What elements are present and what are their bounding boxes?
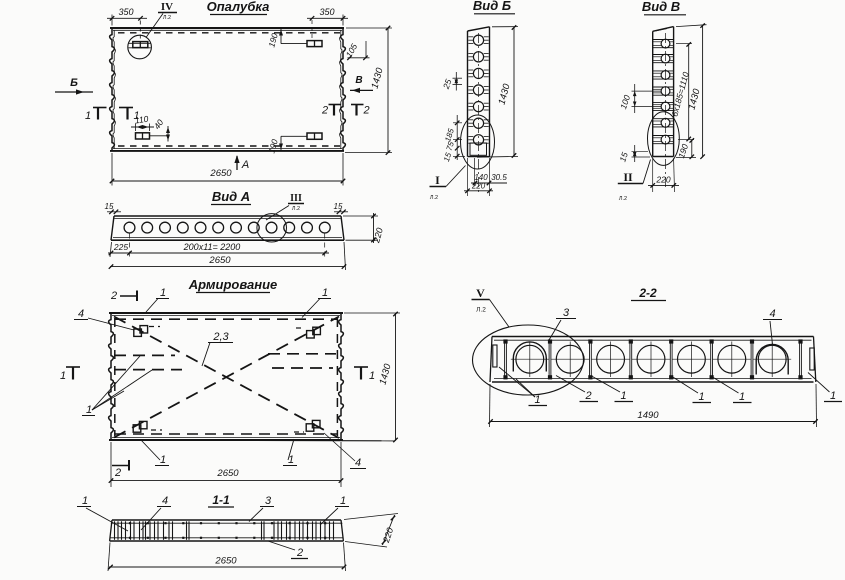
svg-text:1: 1	[534, 394, 540, 406]
svg-text:II: II	[623, 170, 633, 184]
svg-text:225: 225	[113, 242, 128, 252]
svg-text:2650: 2650	[209, 168, 232, 179]
svg-text:1: 1	[82, 495, 88, 507]
svg-text:V: V	[476, 286, 485, 300]
svg-text:2-2: 2-2	[638, 286, 657, 300]
svg-text:2650: 2650	[208, 255, 231, 266]
svg-text:220: 220	[471, 182, 486, 191]
svg-text:1-1: 1-1	[212, 493, 230, 507]
svg-text:В: В	[355, 75, 362, 86]
svg-text:2650: 2650	[214, 556, 237, 567]
svg-text:IV: IV	[161, 1, 173, 13]
svg-text:Л.2: Л.2	[476, 307, 486, 314]
svg-text:1: 1	[322, 287, 328, 299]
svg-text:4: 4	[769, 308, 775, 320]
svg-text:1: 1	[340, 495, 346, 507]
svg-text:1: 1	[369, 370, 375, 382]
svg-text:1: 1	[830, 390, 836, 402]
svg-text:1: 1	[739, 391, 745, 403]
svg-text:Б: Б	[70, 77, 78, 89]
svg-text:4: 4	[78, 308, 84, 320]
svg-text:Л.2: Л.2	[292, 206, 300, 212]
svg-text:30.5: 30.5	[491, 173, 507, 182]
svg-text:1: 1	[86, 404, 92, 416]
svg-text:1: 1	[133, 110, 139, 122]
svg-text:2: 2	[110, 290, 117, 302]
svg-text:1: 1	[160, 454, 166, 466]
svg-text:2: 2	[362, 105, 369, 117]
svg-text:1: 1	[60, 370, 66, 382]
svg-text:1: 1	[160, 287, 166, 299]
svg-text:220: 220	[655, 175, 670, 185]
svg-text:1: 1	[698, 391, 704, 403]
svg-text:4: 4	[355, 457, 361, 469]
svg-text:2,3: 2,3	[212, 331, 229, 343]
svg-text:1: 1	[85, 110, 91, 122]
svg-text:350: 350	[319, 7, 334, 17]
svg-text:2: 2	[114, 467, 121, 479]
svg-text:2: 2	[296, 547, 303, 559]
svg-text:Вид Б: Вид Б	[473, 0, 511, 13]
svg-text:III: III	[290, 193, 302, 204]
svg-text:15: 15	[105, 202, 114, 211]
svg-text:Л.2: Л.2	[430, 195, 438, 201]
svg-text:200х11= 2200: 200х11= 2200	[183, 242, 241, 252]
svg-text:350: 350	[118, 7, 133, 17]
svg-text:3: 3	[563, 307, 570, 319]
svg-text:Л.2: Л.2	[163, 15, 171, 21]
svg-text:Опалубка: Опалубка	[207, 0, 270, 14]
svg-text:15: 15	[334, 202, 343, 211]
svg-text:Вид А: Вид А	[212, 189, 250, 204]
svg-text:Вид В: Вид В	[642, 0, 680, 14]
svg-text:2: 2	[584, 390, 591, 402]
svg-text:I: I	[435, 173, 440, 187]
svg-text:4: 4	[162, 495, 168, 507]
svg-text:Армирование: Армирование	[188, 277, 278, 292]
svg-text:1: 1	[620, 390, 626, 402]
svg-text:1490: 1490	[637, 410, 659, 421]
svg-text:2650: 2650	[216, 468, 239, 479]
svg-text:2: 2	[321, 105, 328, 117]
svg-text:3: 3	[265, 495, 272, 507]
svg-text:Л.2: Л.2	[619, 196, 627, 202]
svg-text:А: А	[241, 159, 249, 171]
